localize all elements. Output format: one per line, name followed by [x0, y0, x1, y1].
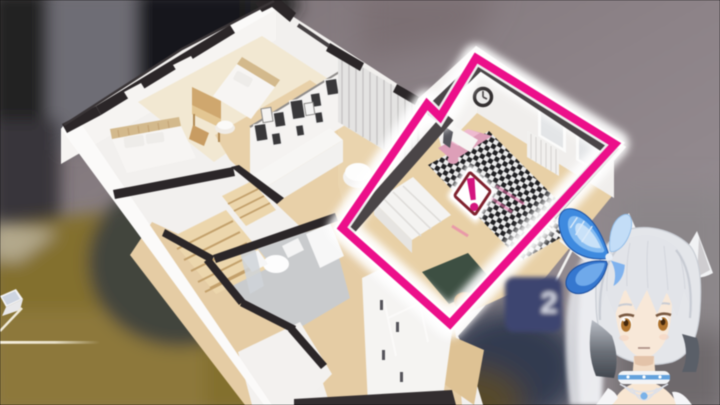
svg-text:2: 2: [540, 285, 557, 320]
